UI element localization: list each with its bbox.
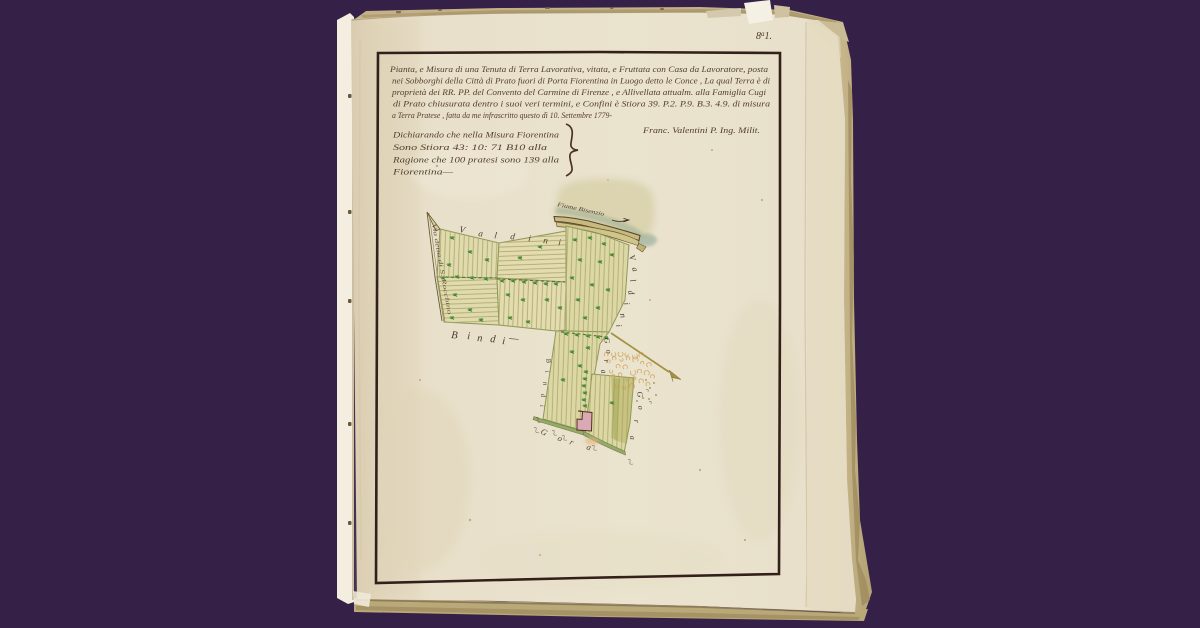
svg-text:8a1.: 8a1. bbox=[756, 30, 772, 42]
svg-text:a Terra Pratese , fatta da me: a Terra Pratese , fatta da me infrascrit… bbox=[392, 111, 612, 120]
svg-text:proprietà dei RR. PP. del Conv: proprietà dei RR. PP. del Convento del C… bbox=[391, 88, 766, 97]
svg-text:Sono Stiora 43: 10: 71 B10 all: Sono Stiora 43: 10: 71 B10 alla bbox=[393, 143, 547, 152]
svg-text:Fiorentina—: Fiorentina— bbox=[392, 168, 455, 177]
svg-text:n: n bbox=[477, 333, 483, 344]
svg-text:nei Sobborghi della Città di P: nei Sobborghi della Città di Prato fuori… bbox=[392, 77, 770, 86]
svg-text:di Prato chiusurata dentro i s: di Prato chiusurata dentro i suoi veri t… bbox=[393, 100, 770, 109]
svg-text:Franc. Valentini P. Ing. Milit: Franc. Valentini P. Ing. Milit. bbox=[642, 126, 760, 135]
svg-text:Dichiarando che nella Misura F: Dichiarando che nella Misura Fiorentina bbox=[392, 131, 559, 140]
svg-text:Pianta, e Misura di una Tenuta: Pianta, e Misura di una Tenuta di Terra … bbox=[389, 65, 768, 74]
svg-text:—: — bbox=[508, 333, 520, 345]
svg-text:Ragione che 100 pratesi sono 1: Ragione che 100 pratesi sono 139 alla bbox=[392, 156, 559, 165]
